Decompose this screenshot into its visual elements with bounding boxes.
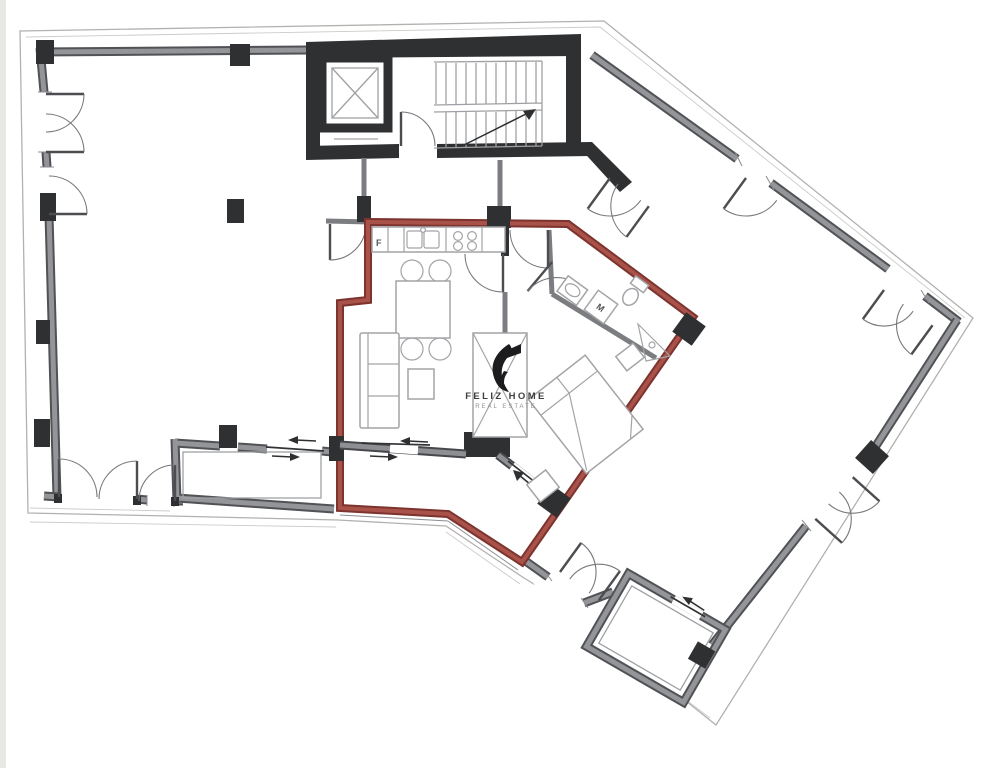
fridge-label: F (376, 238, 382, 248)
column (230, 44, 250, 66)
dining-table (396, 281, 450, 338)
sofa (360, 333, 399, 428)
brand-name: FELIZ HOME (465, 391, 547, 402)
column (36, 40, 54, 64)
column (219, 425, 237, 448)
column (34, 419, 50, 447)
page-edge (0, 0, 6, 768)
brand-tagline: REAL ESTATE (475, 404, 537, 410)
floor-plan-drawing: F M (0, 0, 1000, 768)
column (36, 320, 50, 344)
column (227, 199, 244, 223)
coffee-table (408, 369, 434, 399)
kitchen-counter: F (372, 227, 505, 252)
floor-plan-canvas: F M (0, 0, 1000, 768)
column (40, 193, 56, 221)
